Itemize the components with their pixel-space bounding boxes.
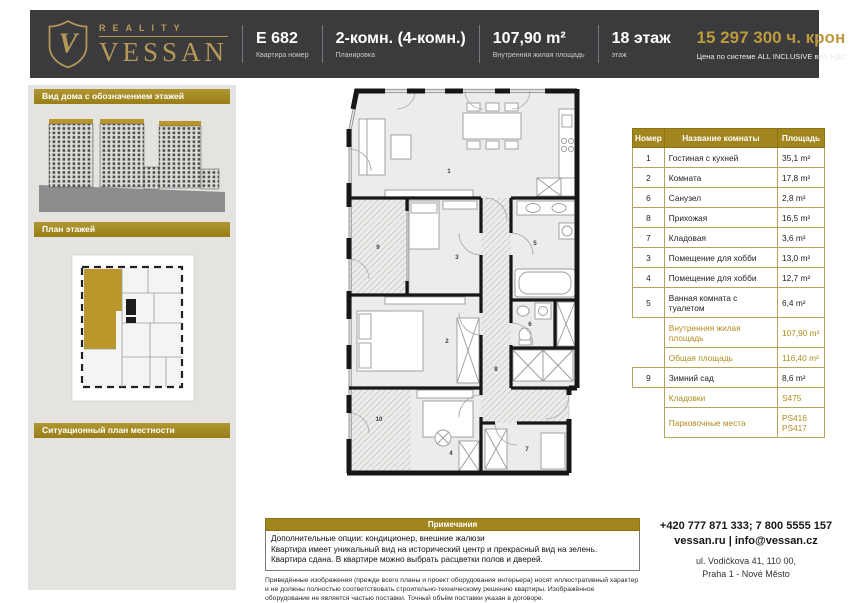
room-label-10: 10	[376, 416, 383, 423]
table-header-row: Номер Название комнаты Площадь	[633, 129, 825, 148]
table-row-storage: Кладовки S475	[633, 388, 825, 408]
room-label-5: 5	[533, 240, 537, 247]
notes-box: Дополнительные опции: кондиционер, внешн…	[265, 531, 640, 571]
cell-num: 1	[633, 148, 665, 168]
room-label-6: 6	[528, 321, 532, 328]
legal-disclaimer: Приведённые изображения (прежде всего пл…	[265, 576, 640, 603]
cell-area: 116,40 m²	[778, 348, 825, 368]
left-sidebar: Вид дома с обозначением этажей План этаж…	[28, 85, 236, 590]
low-wing	[201, 169, 219, 189]
office-address: ul. Vodičkova 41, 110 00, Praha 1 - Nové…	[645, 555, 847, 581]
cell-name: Внутренняя жилая площадь	[664, 318, 777, 348]
area-label: Внутренняя жилая площадь	[493, 52, 585, 59]
apartment-number-value: E 682	[256, 30, 309, 48]
table-row: 8 Прихожая 16,5 m²	[633, 208, 825, 228]
price-field: 15 297 300 ч. крон Цена по системе ALL I…	[684, 28, 849, 61]
cell-name: Ванная комната с туалетом	[664, 288, 777, 318]
floor-plan-thumbnail	[70, 253, 196, 403]
apartment-number-field: E 682 Квартира номер	[243, 30, 322, 59]
brand-logo: V REALITY VESSAN	[30, 19, 242, 69]
col-header-room-name: Название комнаты	[664, 129, 777, 148]
cell-area: 107,90 m²	[778, 318, 825, 348]
cell-name: Кладовки	[664, 388, 777, 408]
brand-text: REALITY VESSAN	[99, 23, 228, 66]
apartment-number-label: Квартира номер	[256, 52, 309, 59]
cell-area: 16,5 m²	[778, 208, 825, 228]
cell-area: S475	[778, 388, 825, 408]
website-and-email: vessan.ru | info@vessan.cz	[645, 535, 847, 547]
floor-plan-drawing: 1 2 3 4 5 6 7 8 9 10	[345, 83, 585, 483]
shaft-boxes	[537, 178, 575, 196]
cell-area: PS416 PS417	[778, 408, 825, 438]
table-row: 2 Комната 17,8 m²	[633, 168, 825, 188]
hall-wardrobes	[513, 350, 573, 381]
price-label: Цена по системе ALL INCLUSIVE вкл. НДС	[697, 52, 847, 61]
cell-name: Парковочные места	[664, 408, 777, 438]
cell-num	[633, 318, 665, 348]
ground	[39, 185, 225, 212]
col-header-number: Номер	[633, 129, 665, 148]
section-title-house-view: Вид дома с обозначением этажей	[34, 89, 230, 104]
cell-num: 3	[633, 248, 665, 268]
cell-num	[633, 348, 665, 368]
brand-monogram: V	[59, 29, 80, 60]
room-label-7: 7	[525, 446, 529, 453]
cell-name: Помещение для хобби	[664, 248, 777, 268]
cell-area: 13,0 m²	[778, 248, 825, 268]
price-value: 15 297 300 ч. крон	[697, 28, 847, 48]
floor-field: 18 этаж этаж	[599, 30, 684, 59]
cell-name: Прихожая	[664, 208, 777, 228]
room-label-1: 1	[447, 168, 451, 175]
phone-numbers: +420 777 871 333; 7 800 5555 157	[645, 520, 847, 532]
room-label-4: 4	[449, 450, 453, 457]
note-line: Дополнительные опции: кондиционер, внешн…	[271, 534, 634, 545]
cell-area: 8,6 m²	[778, 368, 825, 388]
section-title-floorplan: План этажей	[34, 222, 230, 237]
cell-num: 8	[633, 208, 665, 228]
cell-name: Помещение для хобби	[664, 268, 777, 288]
floor-value: 18 этаж	[612, 30, 671, 48]
cell-num: 5	[633, 288, 665, 318]
thumb-core	[126, 299, 136, 323]
note-line: Квартира имеет уникальный вид на историч…	[271, 545, 634, 556]
tower-1	[49, 119, 93, 187]
brand-name-label: VESSAN	[99, 39, 228, 66]
notes-title: Примечания	[265, 518, 640, 531]
main-floor-plan: 1 2 3 4 5 6 7 8 9 10	[345, 83, 585, 483]
room-table: Номер Название комнаты Площадь 1 Гостина…	[632, 128, 825, 438]
cell-num: 7	[633, 228, 665, 248]
cell-num: 9	[633, 368, 665, 388]
table-row: 6 Санузел 2,8 m²	[633, 188, 825, 208]
cell-num	[633, 408, 665, 438]
area-field: 107,90 m² Внутренняя жилая площадь	[480, 30, 598, 59]
tower-3	[159, 121, 201, 188]
cell-area: 6,4 m²	[778, 288, 825, 318]
cell-name: Санузел	[664, 188, 777, 208]
floor-label: этаж	[612, 52, 671, 59]
shield-logo-icon: V	[46, 19, 90, 69]
layout-label: Планировка	[336, 52, 466, 59]
room-label-8: 8	[494, 366, 498, 373]
note-line: Квартира сдана. В квартире можно выбрать…	[271, 555, 634, 566]
table-row: 1 Гостиная с кухней 35,1 m²	[633, 148, 825, 168]
room-label-2: 2	[445, 338, 449, 345]
brand-reality-label: REALITY	[99, 23, 228, 37]
building-elevation-image	[37, 109, 227, 217]
cell-area: 35,1 m²	[778, 148, 825, 168]
room-label-3: 3	[455, 254, 459, 261]
low-wing	[144, 167, 159, 189]
table-row: 9 Зимний сад 8,6 m²	[633, 368, 825, 388]
cell-name: Зимний сад	[664, 368, 777, 388]
layout-value: 2-комн. (4-комн.)	[336, 30, 466, 48]
table-row-parking: Парковочные места PS416 PS417	[633, 408, 825, 438]
table-row: 7 Кладовая 3,6 m²	[633, 228, 825, 248]
table-row-total-living-area: Внутренняя жилая площадь 107,90 m²	[633, 318, 825, 348]
address-line-2: Praha 1 - Nové Město	[645, 568, 847, 581]
section-title-site-map: Ситуационный план местности	[34, 423, 230, 438]
cell-num: 4	[633, 268, 665, 288]
table-row: 4 Помещение для хобби 12,7 m²	[633, 268, 825, 288]
table-row: 5 Ванная комната с туалетом 6,4 m²	[633, 288, 825, 318]
header-bar: V REALITY VESSAN E 682 Квартира номер 2-…	[30, 10, 819, 78]
cell-num: 6	[633, 188, 665, 208]
area-value: 107,90 m²	[493, 30, 585, 48]
cell-area: 17,8 m²	[778, 168, 825, 188]
cell-num	[633, 388, 665, 408]
layout-field: 2-комн. (4-комн.) Планировка	[323, 30, 479, 59]
room-label-9: 9	[376, 244, 380, 251]
cell-name: Комната	[664, 168, 777, 188]
col-header-area: Площадь	[778, 129, 825, 148]
cell-num: 2	[633, 168, 665, 188]
table-row: 3 Помещение для хобби 13,0 m²	[633, 248, 825, 268]
contact-block: +420 777 871 333; 7 800 5555 157 vessan.…	[645, 520, 847, 581]
cell-name: Гостиная с кухней	[664, 148, 777, 168]
cell-name: Общая площадь	[664, 348, 777, 368]
notes-section: Примечания Дополнительные опции: кондици…	[265, 518, 640, 603]
table-row-total-area: Общая площадь 116,40 m²	[633, 348, 825, 368]
address-line-1: ul. Vodičkova 41, 110 00,	[645, 555, 847, 568]
cell-area: 2,8 m²	[778, 188, 825, 208]
tower-2	[100, 119, 144, 187]
cell-area: 3,6 m²	[778, 228, 825, 248]
cell-area: 12,7 m²	[778, 268, 825, 288]
cell-name: Кладовая	[664, 228, 777, 248]
